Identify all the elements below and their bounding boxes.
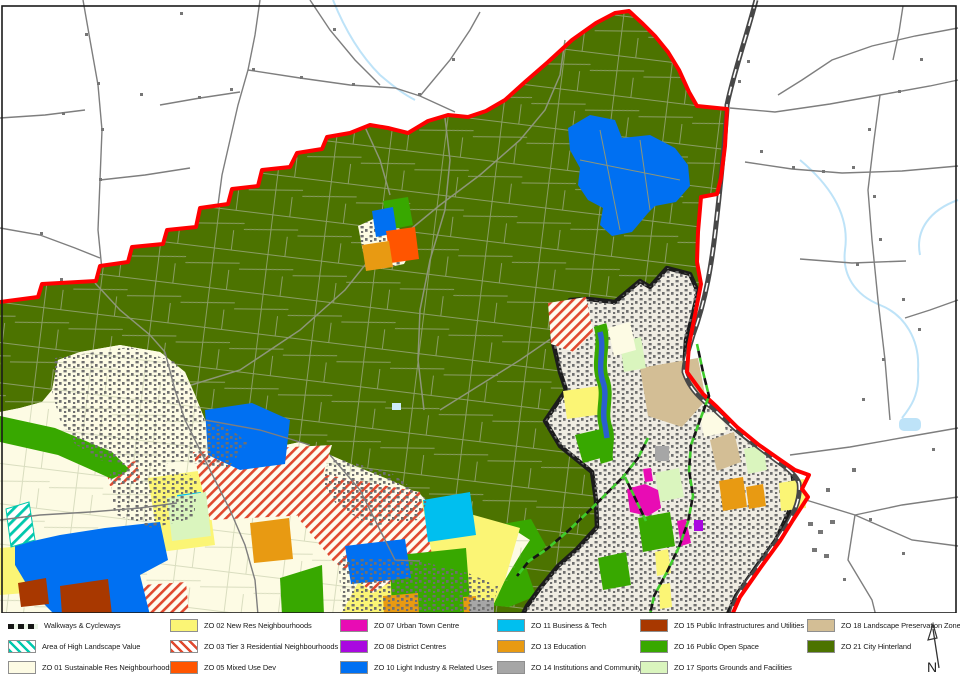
pond <box>899 418 921 431</box>
zo21-swatch <box>807 640 835 653</box>
zo17-swatch <box>640 661 668 674</box>
high-landscape-value-swatch <box>8 640 36 653</box>
legend-item-zo11: ZO 11 Business & Tech <box>497 619 607 632</box>
walkways-swatch <box>8 624 38 629</box>
small-pond <box>392 403 401 410</box>
zo03-swatch <box>170 640 198 653</box>
legend-item-zo21: ZO 21 City Hinterland <box>807 640 911 653</box>
legend-label-zo01: ZO 01 Sustainable Res Neighbourhoods <box>42 661 173 674</box>
zo14-swatch <box>497 661 525 674</box>
legend-label-zo21: ZO 21 City Hinterland <box>841 640 911 653</box>
zo11-swatch <box>497 619 525 632</box>
legend-label-zo03: ZO 03 Tier 3 Residential Neighbourhoods <box>204 640 338 653</box>
legend-item-zo10: ZO 10 Light Industry & Related Uses <box>340 661 493 674</box>
zo18-swatch <box>807 619 835 632</box>
legend-label-walkways: Walkways & Cycleways <box>44 619 121 632</box>
zo08-swatch <box>340 640 368 653</box>
legend-label-zo15: ZO 15 Public Infrastructures and Utiliti… <box>674 619 804 632</box>
zo15-swatch <box>640 619 668 632</box>
legend-item-zo14: ZO 14 Institutions and Community <box>497 661 641 674</box>
legend-item-zo08: ZO 08 District Centres <box>340 640 446 653</box>
legend-item-zo07: ZO 07 Urban Town Centre <box>340 619 459 632</box>
zo02-swatch <box>170 619 198 632</box>
zo05-swatch <box>170 661 198 674</box>
legend-item-zo01: ZO 01 Sustainable Res Neighbourhoods <box>8 661 173 674</box>
zo07-swatch <box>340 619 368 632</box>
legend: Walkways & CyclewaysArea of High Landsca… <box>0 613 960 679</box>
legend-item-zo13: ZO 13 Education <box>497 640 586 653</box>
north-arrow: N <box>918 616 958 676</box>
legend-item-zo05: ZO 05 Mixed Use Dev <box>170 661 276 674</box>
zo10-swatch <box>340 661 368 674</box>
legend-label-zo10: ZO 10 Light Industry & Related Uses <box>374 661 493 674</box>
legend-label-zo07: ZO 07 Urban Town Centre <box>374 619 459 632</box>
legend-label-high-landscape-value: Area of High Landscape Value <box>42 640 140 653</box>
legend-label-zo02: ZO 02 New Res Neighbourhoods <box>204 619 312 632</box>
legend-item-zo16: ZO 16 Public Open Space <box>640 640 759 653</box>
north-label: N <box>927 659 937 675</box>
zoning-map <box>0 0 960 616</box>
zo01-swatch <box>8 661 36 674</box>
map-canvas <box>0 0 960 616</box>
legend-label-zo08: ZO 08 District Centres <box>374 640 446 653</box>
zoning-map-page: Walkways & CyclewaysArea of High Landsca… <box>0 0 960 679</box>
legend-item-high-landscape-value: Area of High Landscape Value <box>8 640 140 653</box>
zo13-swatch <box>497 640 525 653</box>
legend-label-zo11: ZO 11 Business & Tech <box>531 619 607 632</box>
legend-label-zo05: ZO 05 Mixed Use Dev <box>204 661 276 674</box>
legend-item-zo03: ZO 03 Tier 3 Residential Neighbourhoods <box>170 640 338 653</box>
legend-item-zo15: ZO 15 Public Infrastructures and Utiliti… <box>640 619 804 632</box>
legend-label-zo13: ZO 13 Education <box>531 640 586 653</box>
legend-item-zo02: ZO 02 New Res Neighbourhoods <box>170 619 312 632</box>
legend-item-walkways: Walkways & Cycleways <box>8 619 121 632</box>
zo16-swatch <box>640 640 668 653</box>
legend-item-zo17: ZO 17 Sports Grounds and Facilities <box>640 661 792 674</box>
legend-label-zo14: ZO 14 Institutions and Community <box>531 661 641 674</box>
legend-label-zo17: ZO 17 Sports Grounds and Facilities <box>674 661 792 674</box>
legend-label-zo16: ZO 16 Public Open Space <box>674 640 759 653</box>
